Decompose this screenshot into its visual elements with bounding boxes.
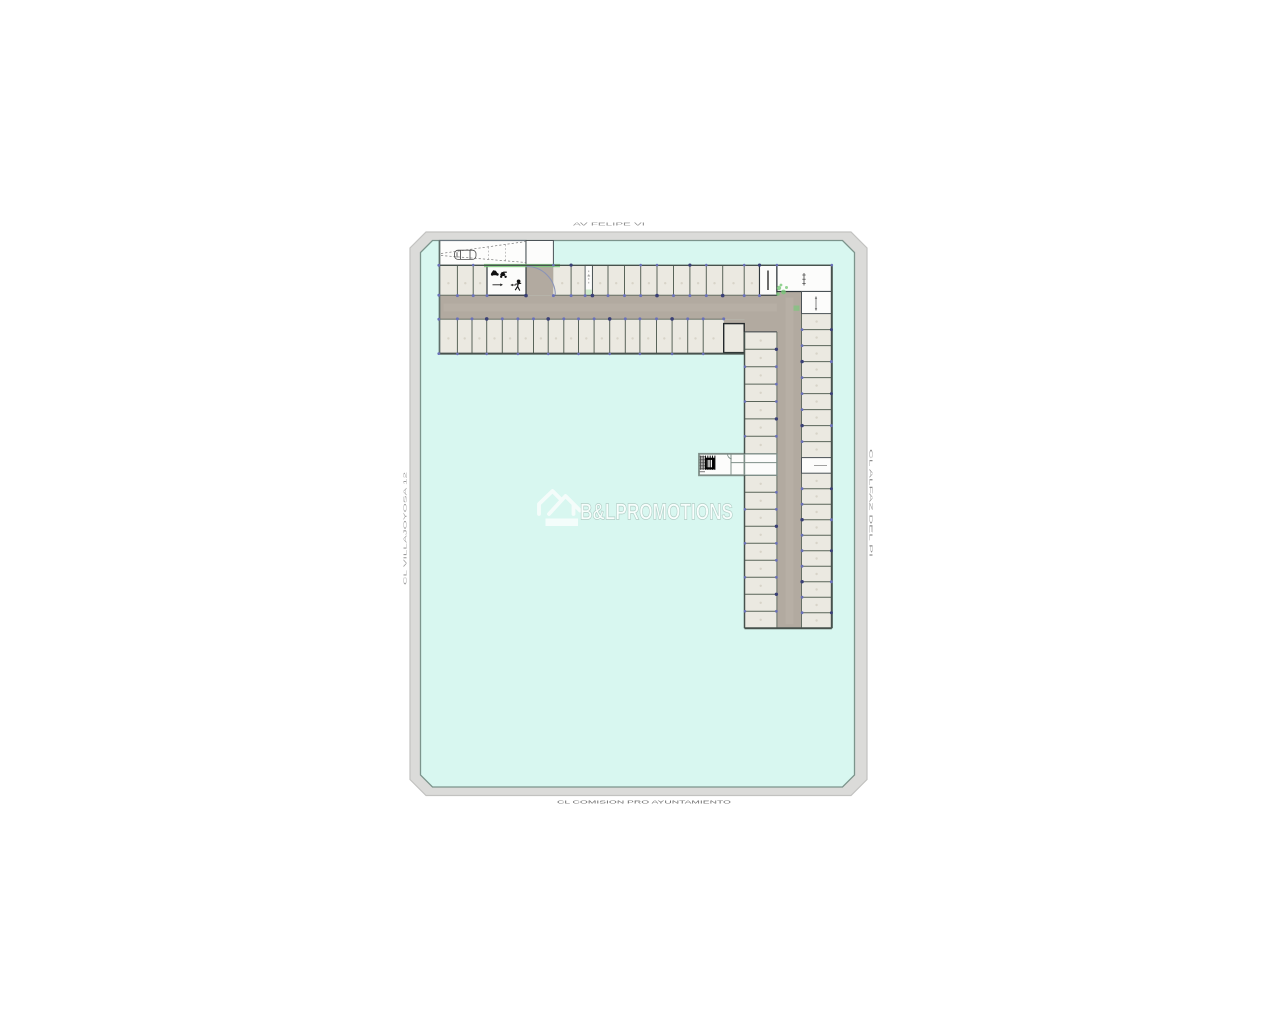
svg-text:CL ALFAZ DEL PI: CL ALFAZ DEL PI bbox=[868, 449, 874, 557]
svg-text:AV FELIPE VI: AV FELIPE VI bbox=[573, 222, 645, 228]
svg-text:B&LPROMOTIONS: B&LPROMOTIONS bbox=[580, 499, 733, 525]
svg-text:CL COMISION PRO AYUNTAMIENT: CL COMISION PRO AYUNTAMIENTO bbox=[557, 800, 732, 806]
svg-text:CL VILLAJOYOSA 12: CL VILLAJOYOSA 12 bbox=[403, 471, 409, 585]
